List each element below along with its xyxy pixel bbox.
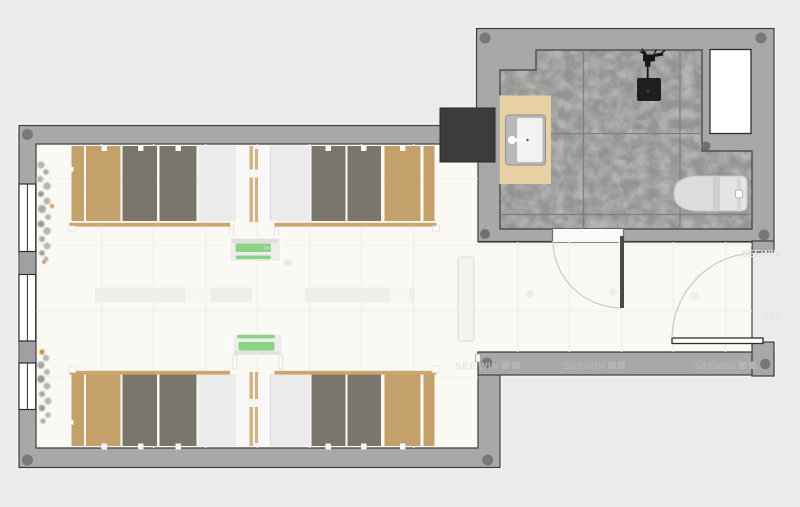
svg-text:WIN: WIN xyxy=(478,362,499,373)
svg-text:SEE: SEE xyxy=(455,362,477,373)
svg-text:SEEWIN: SEEWIN xyxy=(741,249,780,260)
svg-text:SEEWIN: SEEWIN xyxy=(563,362,605,373)
svg-text:SEE: SEE xyxy=(762,312,782,323)
svg-text:SEEWIN: SEEWIN xyxy=(694,362,736,373)
